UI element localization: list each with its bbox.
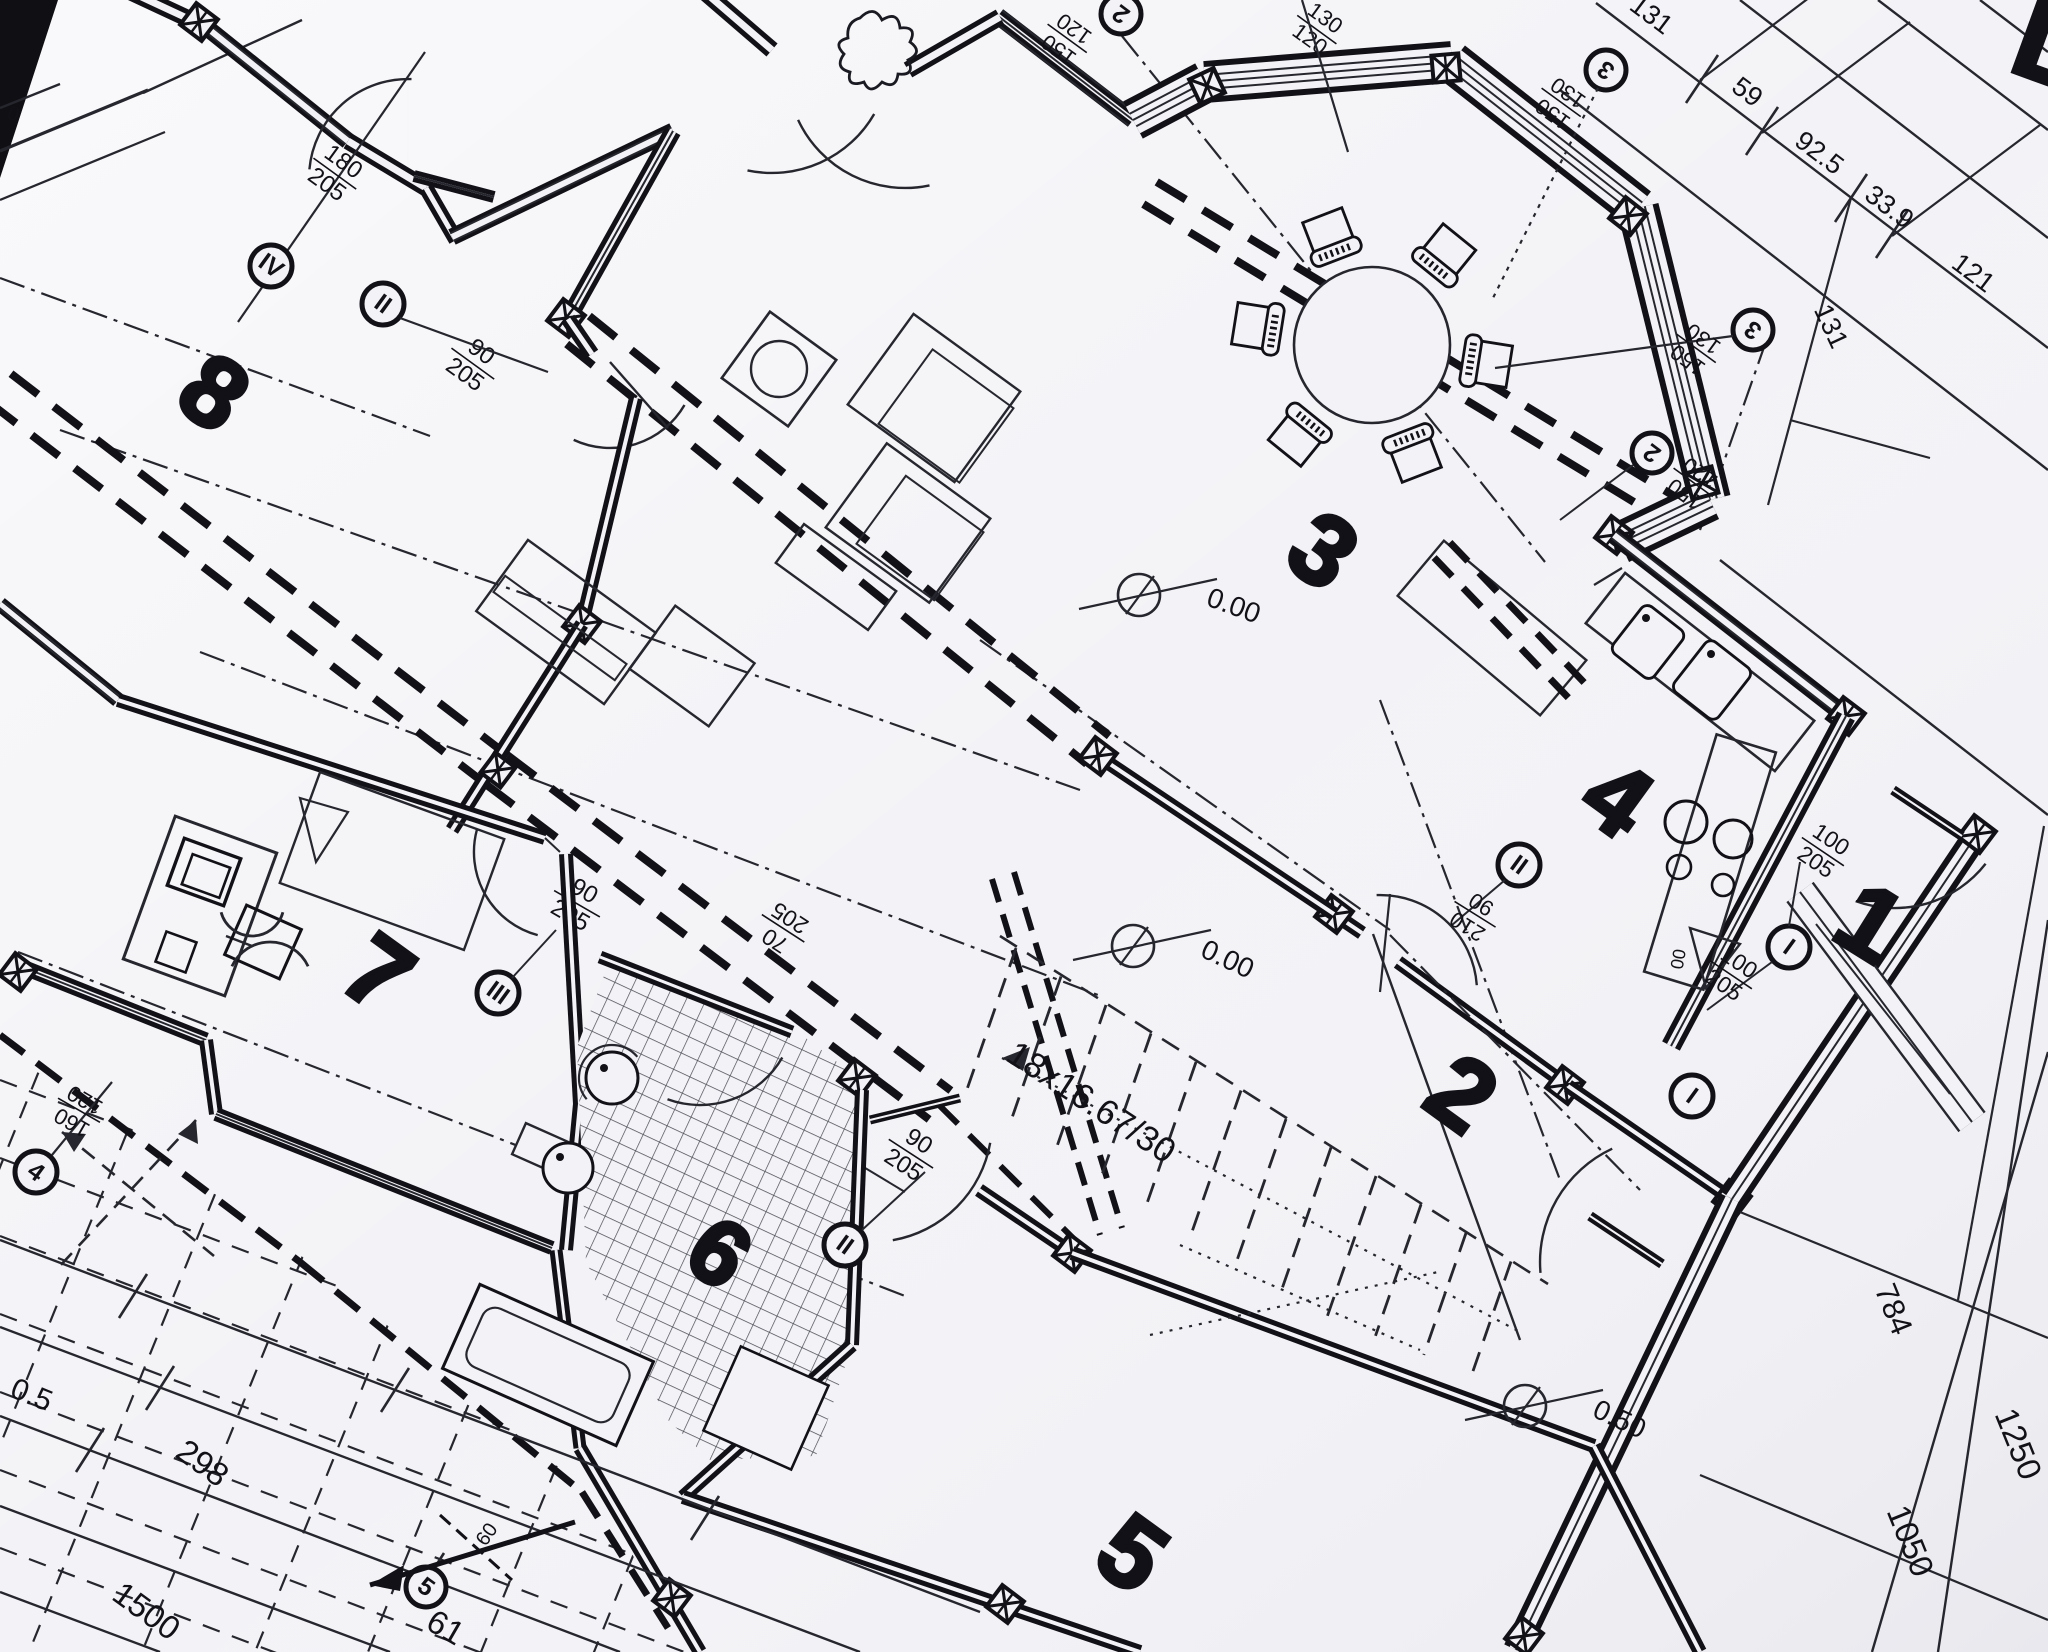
- svg-text:00: 00: [1666, 947, 1689, 970]
